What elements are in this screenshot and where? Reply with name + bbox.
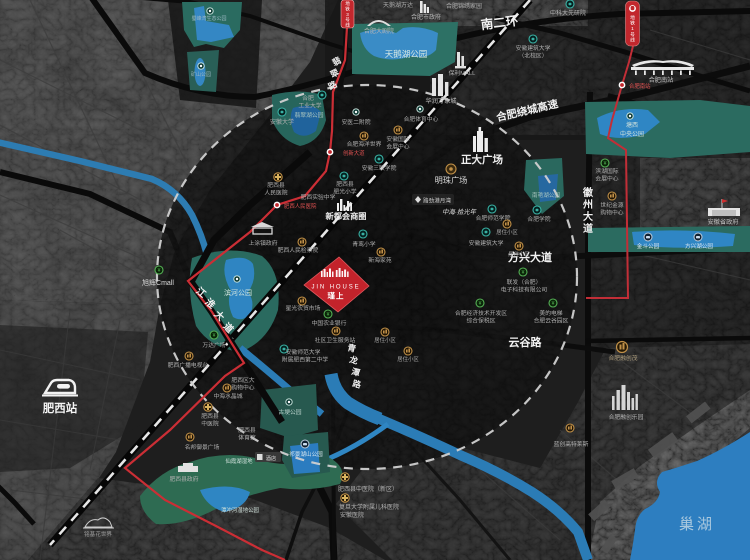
svg-text:肥西县: 肥西县 [201, 413, 219, 420]
svg-text:铭基花世界: 铭基花世界 [84, 530, 112, 538]
svg-text:地: 地 [345, 0, 350, 6]
svg-text:天鹅湖公园: 天鹅湖公园 [385, 49, 428, 59]
svg-text:购物中心: 购物中心 [600, 209, 623, 217]
svg-text:安徽三联学院: 安徽三联学院 [362, 164, 397, 172]
svg-text:滨河公园: 滨河公园 [224, 288, 252, 297]
svg-text:合肥经济技术开发区: 合肥经济技术开发区 [455, 309, 507, 317]
svg-text:青鸾小学: 青鸾小学 [352, 240, 375, 248]
svg-text:上涂镇政府: 上涂镇政府 [249, 239, 278, 247]
svg-text:肥西县: 肥西县 [336, 181, 354, 188]
svg-text:居住小区: 居住小区 [374, 336, 396, 344]
svg-text:翡翠湖公园: 翡翠湖公园 [295, 111, 324, 119]
svg-text:古埂公园: 古埂公园 [278, 408, 301, 416]
svg-text:云谷路: 云谷路 [509, 335, 543, 349]
svg-text:安徽建筑大学: 安徽建筑大学 [516, 44, 551, 52]
svg-text:州: 州 [582, 199, 593, 211]
svg-text:社区卫生服务站: 社区卫生服务站 [315, 336, 356, 344]
svg-text:居住小区: 居住小区 [397, 355, 419, 363]
svg-text:铁: 铁 [630, 20, 635, 27]
svg-text:合肥融创乐园: 合肥融创乐园 [609, 413, 644, 421]
svg-text:路劲港月湾: 路劲港月湾 [423, 197, 451, 205]
svg-text:地: 地 [630, 14, 635, 21]
svg-text:综合保税区: 综合保税区 [467, 317, 496, 325]
svg-text:3: 3 [346, 12, 349, 17]
svg-text:瑾上: 瑾上 [328, 291, 345, 301]
svg-text:肥西实验中学: 肥西实验中学 [301, 193, 336, 201]
svg-text:肥西县中医院（新区）: 肥西县中医院（新区） [338, 485, 398, 493]
svg-text:安徽师范大学: 安徽师范大学 [286, 348, 321, 356]
svg-text:世纪金源: 世纪金源 [600, 201, 623, 209]
svg-text:合肥海洋世界: 合肥海洋世界 [347, 140, 382, 148]
svg-text:肥西人民医院: 肥西人民医院 [284, 202, 317, 210]
svg-text:安医二附院: 安医二附院 [342, 118, 371, 126]
svg-text:安徽医院: 安徽医院 [340, 511, 364, 519]
svg-text:人民医院: 人民医院 [264, 189, 287, 197]
svg-text:星光农贸市场: 星光农贸市场 [286, 304, 321, 312]
svg-text:复旦大学附属儿科医院: 复旦大学附属儿科医院 [339, 503, 399, 511]
svg-text:名邦御景广场: 名邦御景广场 [185, 443, 220, 451]
svg-text:酒店: 酒店 [266, 454, 276, 462]
svg-text:附属肥西第二中学: 附属肥西第二中学 [282, 356, 329, 364]
svg-text:联发（合肥）: 联发（合肥） [507, 278, 542, 286]
svg-text:肥光小学: 肥光小学 [333, 188, 356, 196]
svg-text:徽: 徽 [582, 186, 594, 199]
svg-text:道: 道 [583, 222, 593, 235]
svg-text:潭冲河湿地公园: 潭冲河湿地公园 [221, 506, 259, 514]
svg-text:线: 线 [345, 22, 350, 28]
svg-text:方兴湖公园: 方兴湖公园 [685, 242, 713, 250]
svg-text:金斗公园: 金斗公园 [637, 242, 660, 250]
svg-text:安徽大学: 安徽大学 [270, 118, 294, 126]
svg-text:新都会商圈: 新都会商圈 [326, 211, 367, 221]
svg-text:体育馆: 体育馆 [238, 434, 256, 442]
svg-text:合肥学院: 合肥学院 [527, 215, 550, 223]
svg-text:会展中心: 会展中心 [386, 143, 409, 151]
svg-text:中央公园: 中央公园 [620, 130, 644, 138]
svg-text:JIN HOUSE: JIN HOUSE [311, 285, 360, 291]
svg-text:明珠广场: 明珠广场 [435, 175, 468, 185]
svg-text:居住小区: 居住小区 [508, 250, 530, 258]
svg-text:线: 线 [630, 36, 635, 43]
svg-text:购物中心: 购物中心 [231, 384, 254, 392]
svg-text:华润万象城: 华润万象城 [426, 97, 457, 105]
svg-text:创新大道: 创新大道 [343, 149, 365, 157]
svg-text:南艳湖公园: 南艳湖公园 [532, 191, 560, 199]
svg-text:合肥云谷园区: 合肥云谷园区 [534, 317, 569, 325]
svg-text:矿山公园: 矿山公园 [191, 71, 211, 78]
svg-text:保利MALL: 保利MALL [449, 69, 477, 77]
svg-text:大: 大 [583, 210, 593, 223]
svg-text:肥西广播电视台: 肥西广播电视台 [168, 361, 209, 369]
svg-text:中海·拾光年: 中海·拾光年 [442, 208, 477, 216]
svg-text:蜀峰湾生态公园: 蜀峰湾生态公园 [191, 15, 226, 22]
svg-text:旭辉Cmall: 旭辉Cmall [142, 278, 174, 287]
svg-text:电子科技有限公司: 电子科技有限公司 [501, 286, 548, 294]
svg-text:仙霞湖湿地: 仙霞湖湿地 [226, 457, 254, 465]
svg-text:会展中心: 会展中心 [595, 175, 618, 183]
svg-text:肥西县: 肥西县 [267, 182, 285, 189]
svg-text:合肥融创茂: 合肥融创茂 [609, 354, 638, 362]
svg-text:巢湖: 巢湖 [679, 516, 715, 533]
svg-text:肥西站: 肥西站 [43, 401, 78, 415]
svg-text:中国农业银行: 中国农业银行 [312, 319, 347, 327]
svg-text:号: 号 [630, 32, 635, 38]
svg-text:工业大学: 工业大学 [298, 102, 321, 110]
svg-text:合肥锦绣家园: 合肥锦绣家园 [446, 2, 482, 10]
svg-text:滨湖国际: 滨湖国际 [595, 167, 618, 175]
svg-text:肥西区大: 肥西区大 [231, 376, 254, 384]
svg-text:1: 1 [631, 26, 634, 32]
svg-text:万达广场: 万达广场 [202, 341, 225, 349]
svg-text:合肥: 合肥 [302, 94, 314, 102]
svg-text:安徽建筑大学: 安徽建筑大学 [469, 239, 504, 247]
svg-text:中科大先研院: 中科大先研院 [550, 9, 586, 17]
svg-text:中海水晶城: 中海水晶城 [214, 392, 243, 400]
svg-text:塘西: 塘西 [626, 121, 638, 129]
svg-text:安徽国际: 安徽国际 [386, 135, 409, 143]
svg-text:肥西县: 肥西县 [238, 427, 256, 434]
svg-text:蓝创高特莱斯: 蓝创高特莱斯 [554, 440, 589, 448]
svg-text:中医院: 中医院 [201, 420, 219, 428]
svg-text:正大广场: 正大广场 [461, 153, 503, 166]
svg-text:合肥市政府: 合肥市政府 [411, 13, 441, 21]
svg-text:安徽省政府: 安徽省政府 [708, 218, 739, 226]
svg-text:合肥体育中心: 合肥体育中心 [404, 115, 439, 123]
svg-text:新海家苑: 新海家苑 [368, 256, 391, 264]
svg-text:祁景湖山公园: 祁景湖山公园 [289, 450, 323, 458]
svg-text:居住小区: 居住小区 [496, 228, 518, 236]
svg-text:美的电梯: 美的电梯 [539, 309, 562, 317]
svg-text:合肥大剧院: 合肥大剧院 [364, 27, 394, 35]
svg-text:天鹅湖万达: 天鹅湖万达 [383, 1, 413, 9]
svg-text:（北校区）: （北校区） [519, 52, 548, 60]
svg-text:肥西人民检察院: 肥西人民检察院 [278, 246, 319, 254]
svg-text:肥西县政府: 肥西县政府 [170, 475, 199, 483]
svg-text:合肥南站: 合肥南站 [649, 76, 674, 84]
svg-text:合肥南站: 合肥南站 [629, 82, 651, 90]
